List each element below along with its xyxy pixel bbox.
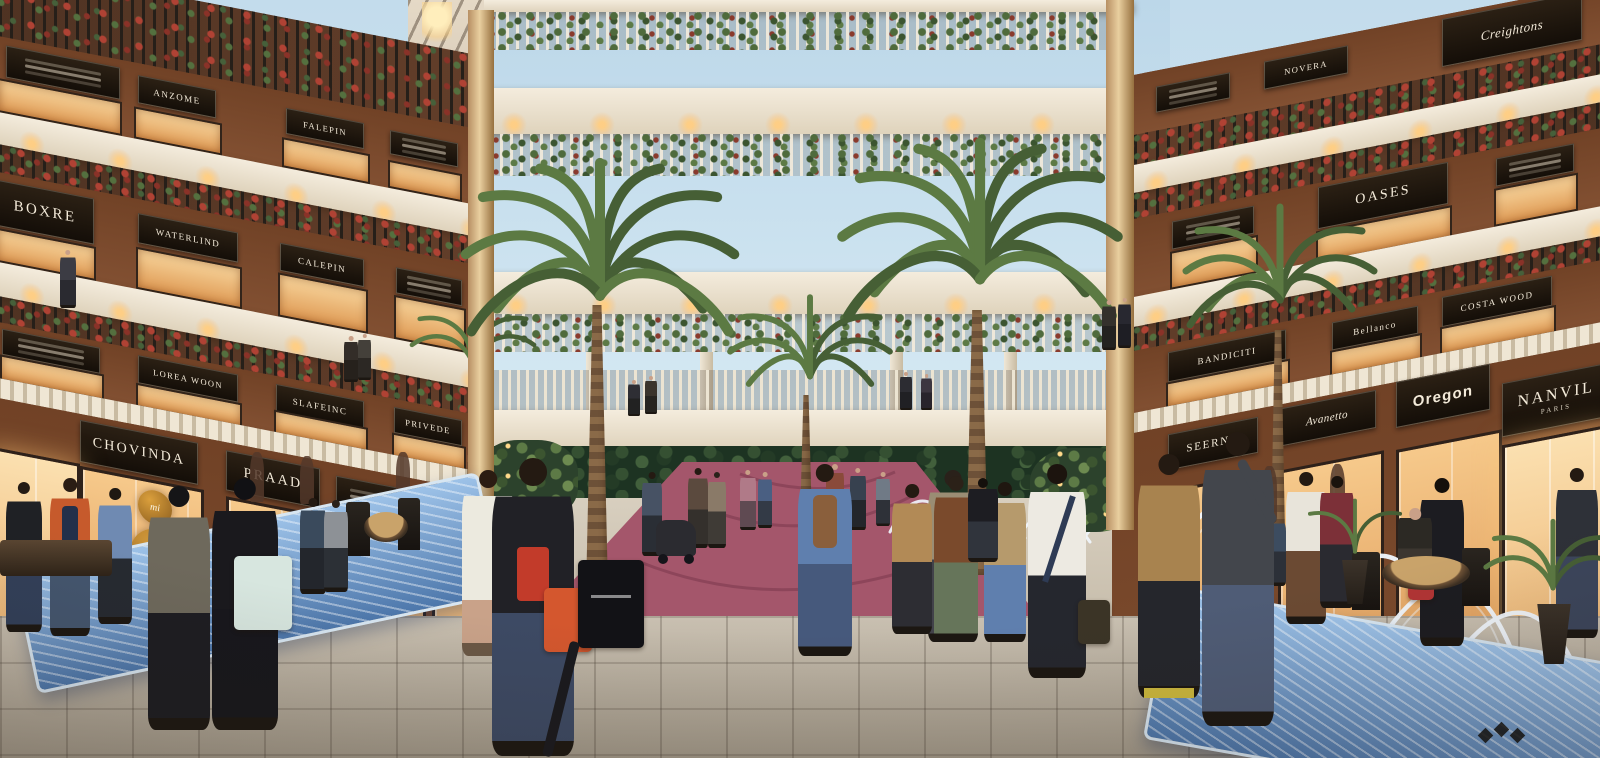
bag-logo	[591, 595, 631, 598]
person-long-tan-coat	[1138, 454, 1200, 698]
bench	[0, 540, 112, 576]
watermark-logo	[1472, 720, 1582, 754]
bridge-person	[900, 372, 912, 410]
cafe-table	[364, 512, 408, 542]
shopping-bag-dark	[1078, 600, 1110, 644]
bridge-person	[628, 380, 640, 416]
pedestrian	[324, 500, 348, 592]
backpack	[813, 495, 837, 549]
black-shopping-bag	[578, 560, 644, 648]
pedestrian	[876, 472, 890, 526]
person-denim-walker	[798, 464, 852, 656]
watermark-diamond	[1510, 728, 1526, 744]
store-sign	[1156, 72, 1230, 112]
pedestrian	[708, 472, 726, 548]
baby-stroller	[656, 520, 696, 556]
watermark-diamond	[1494, 722, 1510, 738]
balcony-person	[344, 336, 358, 382]
shopping-bag-mint	[234, 556, 292, 630]
top-bridge-ceiling	[466, 0, 1134, 12]
bridge-person	[645, 376, 657, 414]
balcony-person	[1102, 300, 1116, 350]
pedestrian	[850, 468, 866, 530]
pedestrian	[758, 472, 772, 528]
mannequin	[300, 456, 314, 504]
person-hijab-grey-coat	[148, 486, 210, 730]
person-grey-sweater-selfie	[1202, 432, 1274, 726]
bridge-fascia	[470, 88, 1132, 134]
balcony-person	[60, 250, 76, 308]
watermark-diamond	[1478, 728, 1494, 744]
balcony-person	[358, 334, 371, 380]
store-sign: NOVERA	[1264, 45, 1348, 89]
hanging-lamp	[422, 2, 452, 48]
pedestrian	[300, 498, 326, 594]
pedestrian	[740, 470, 756, 530]
balcony-person	[1118, 298, 1131, 348]
store-sign-nanvil: NANVIL PARIS	[1502, 362, 1600, 437]
person-tan-jacket	[892, 484, 932, 634]
pedestrian	[968, 478, 998, 562]
person-white-jacket	[1028, 464, 1086, 678]
crossbody-strap	[1042, 495, 1075, 582]
yellow-shoes	[1144, 688, 1194, 698]
mall-atrium-scene: ANZOME FALEPIN BOXRE WATERLIND CALEPIN L…	[0, 0, 1600, 758]
bridge-person	[921, 374, 932, 410]
top-bridge-planter-railing	[466, 12, 1134, 50]
palm-tree-crown	[1180, 205, 1380, 345]
